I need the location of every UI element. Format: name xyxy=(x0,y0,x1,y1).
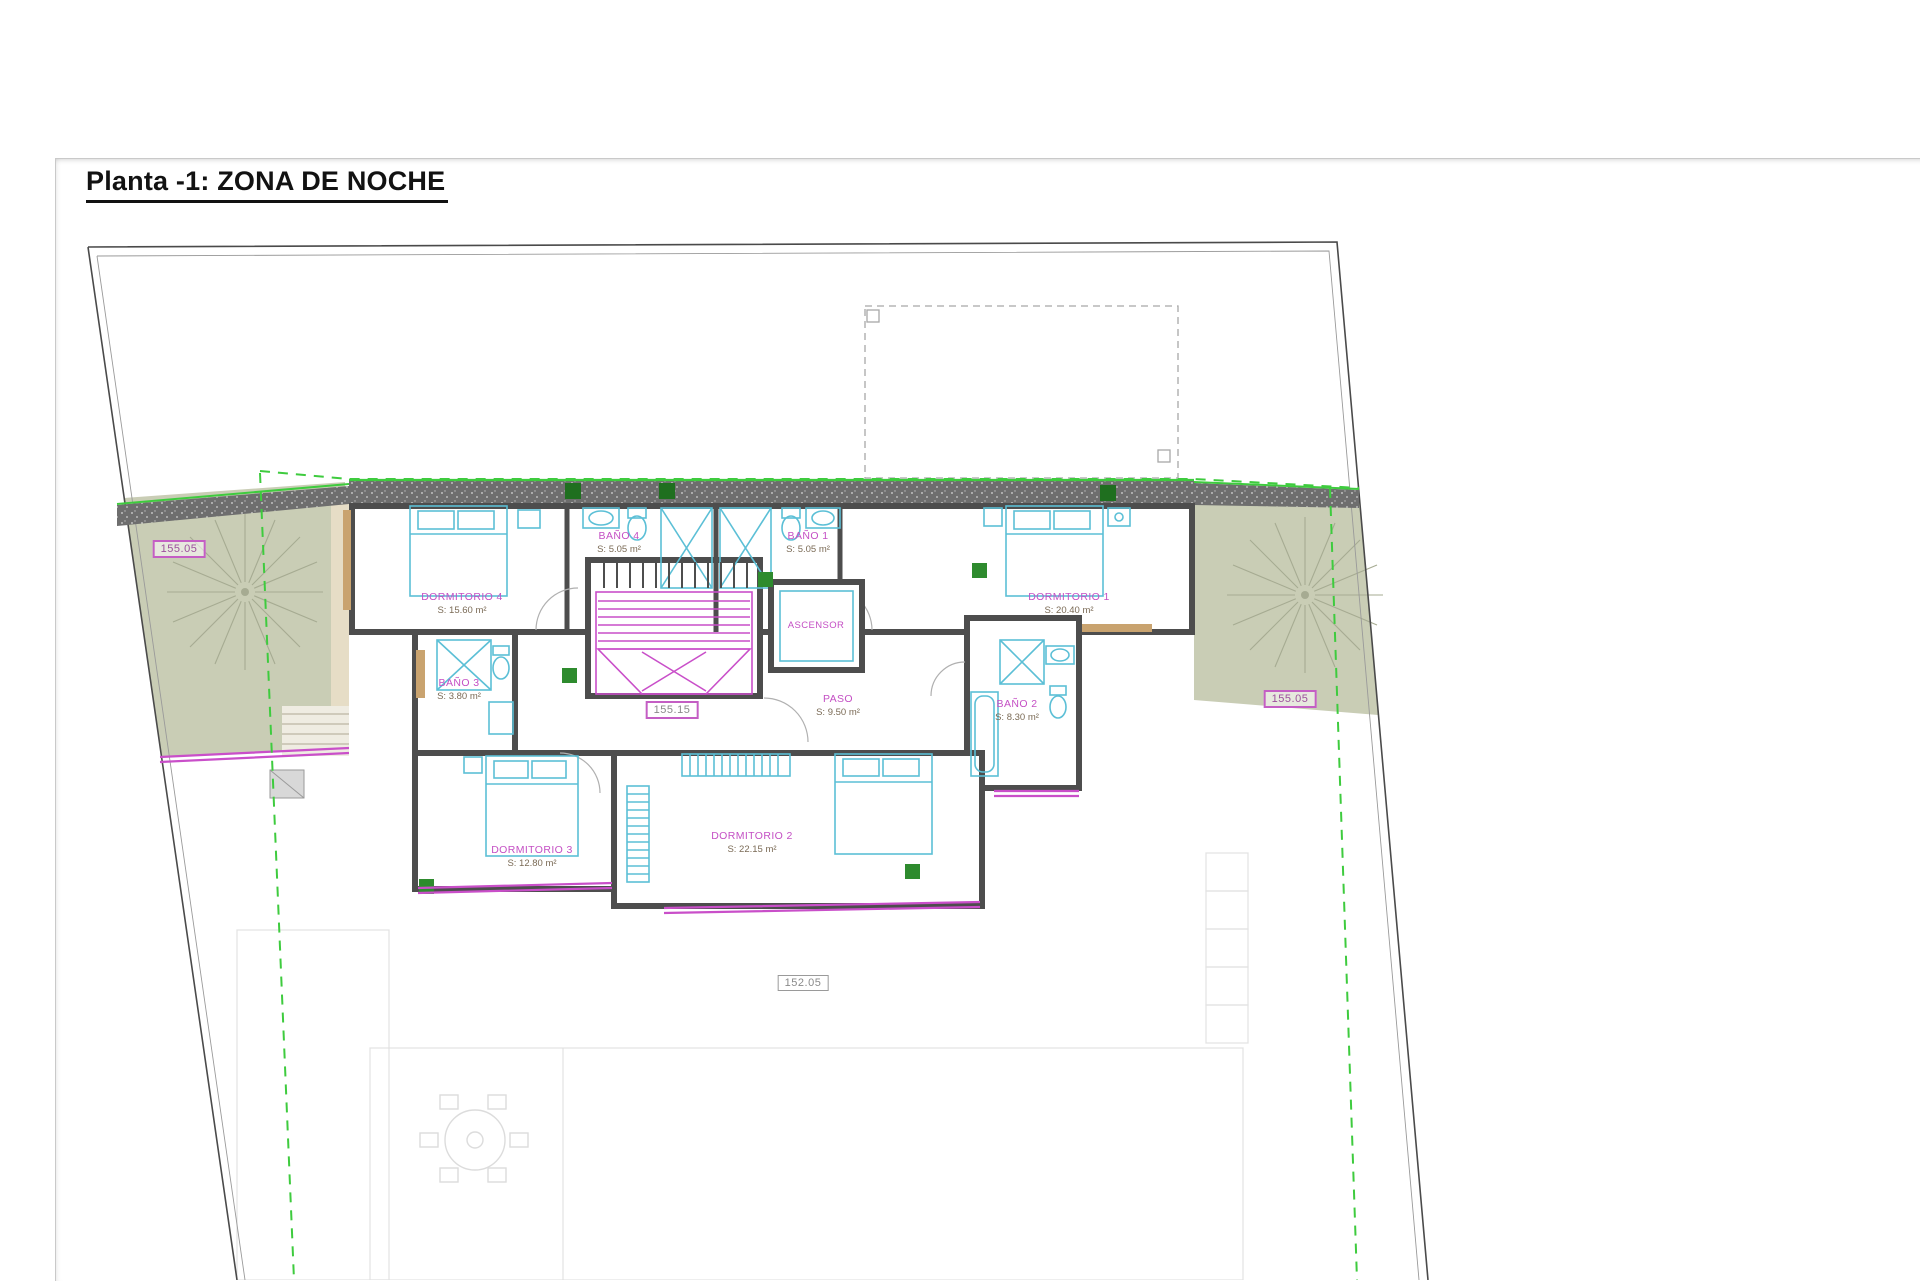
room-label-bano-1: BAÑO 1 S: 5.05 m² xyxy=(786,530,830,556)
room-area: S: 8.30 m² xyxy=(995,712,1039,724)
lower-floor-projection xyxy=(237,853,1248,1280)
room-label-bano-2: BAÑO 2 S: 8.30 m² xyxy=(995,698,1039,724)
room-label-dormitorio-2: DORMITORIO 2 S: 22.15 m² xyxy=(711,830,793,856)
elevation-marker-center: 155.15 xyxy=(646,701,699,719)
elevation-marker-left: 155.05 xyxy=(153,540,206,558)
tree-icon xyxy=(1227,517,1383,673)
tree-icon xyxy=(167,514,323,670)
room-area: S: 15.60 m² xyxy=(421,605,503,617)
room-label-dormitorio-3: DORMITORIO 3 S: 12.80 m² xyxy=(491,844,573,870)
room-name: DORMITORIO 2 xyxy=(711,830,793,844)
room-label-bano-4: BAÑO 4 S: 5.05 m² xyxy=(597,530,641,556)
room-area: S: 20.40 m² xyxy=(1028,605,1110,617)
room-name: PASO xyxy=(816,693,860,707)
room-name: BAÑO 2 xyxy=(995,698,1039,712)
room-name: BAÑO 4 xyxy=(597,530,641,544)
room-name: BAÑO 1 xyxy=(786,530,830,544)
elevation-marker-right: 155.05 xyxy=(1264,690,1317,708)
room-name: DORMITORIO 1 xyxy=(1028,591,1110,605)
boundary-utility-box xyxy=(270,770,304,798)
roof-projection-dashed xyxy=(865,306,1178,478)
room-name: BAÑO 3 xyxy=(437,677,481,691)
terrace-right xyxy=(1194,487,1378,715)
room-area: S: 5.05 m² xyxy=(786,544,830,556)
room-label-dormitorio-4: DORMITORIO 4 S: 15.60 m² xyxy=(421,591,503,617)
room-label-dormitorio-1: DORMITORIO 1 S: 20.40 m² xyxy=(1028,591,1110,617)
room-area: S: 5.05 m² xyxy=(597,544,641,556)
room-name: DORMITORIO 4 xyxy=(421,591,503,605)
room-label-ascensor: ASCENSOR xyxy=(788,620,845,632)
room-label-paso: PASO S: 9.50 m² xyxy=(816,693,860,719)
room-label-bano-3: BAÑO 3 S: 3.80 m² xyxy=(437,677,481,703)
room-area: S: 9.50 m² xyxy=(816,707,860,719)
room-name: ASCENSOR xyxy=(788,620,845,632)
outdoor-table-icon xyxy=(420,1095,528,1182)
room-area: S: 12.80 m² xyxy=(491,858,573,870)
room-name: DORMITORIO 3 xyxy=(491,844,573,858)
terrace-left xyxy=(124,482,349,757)
room-area: S: 3.80 m² xyxy=(437,691,481,703)
drawing-sheet: Planta -1: ZONA DE NOCHE xyxy=(0,0,1920,1280)
room-area: S: 22.15 m² xyxy=(711,844,793,856)
elevation-marker-bottom: 152.05 xyxy=(778,975,829,991)
floor-plan-svg xyxy=(0,0,1920,1280)
